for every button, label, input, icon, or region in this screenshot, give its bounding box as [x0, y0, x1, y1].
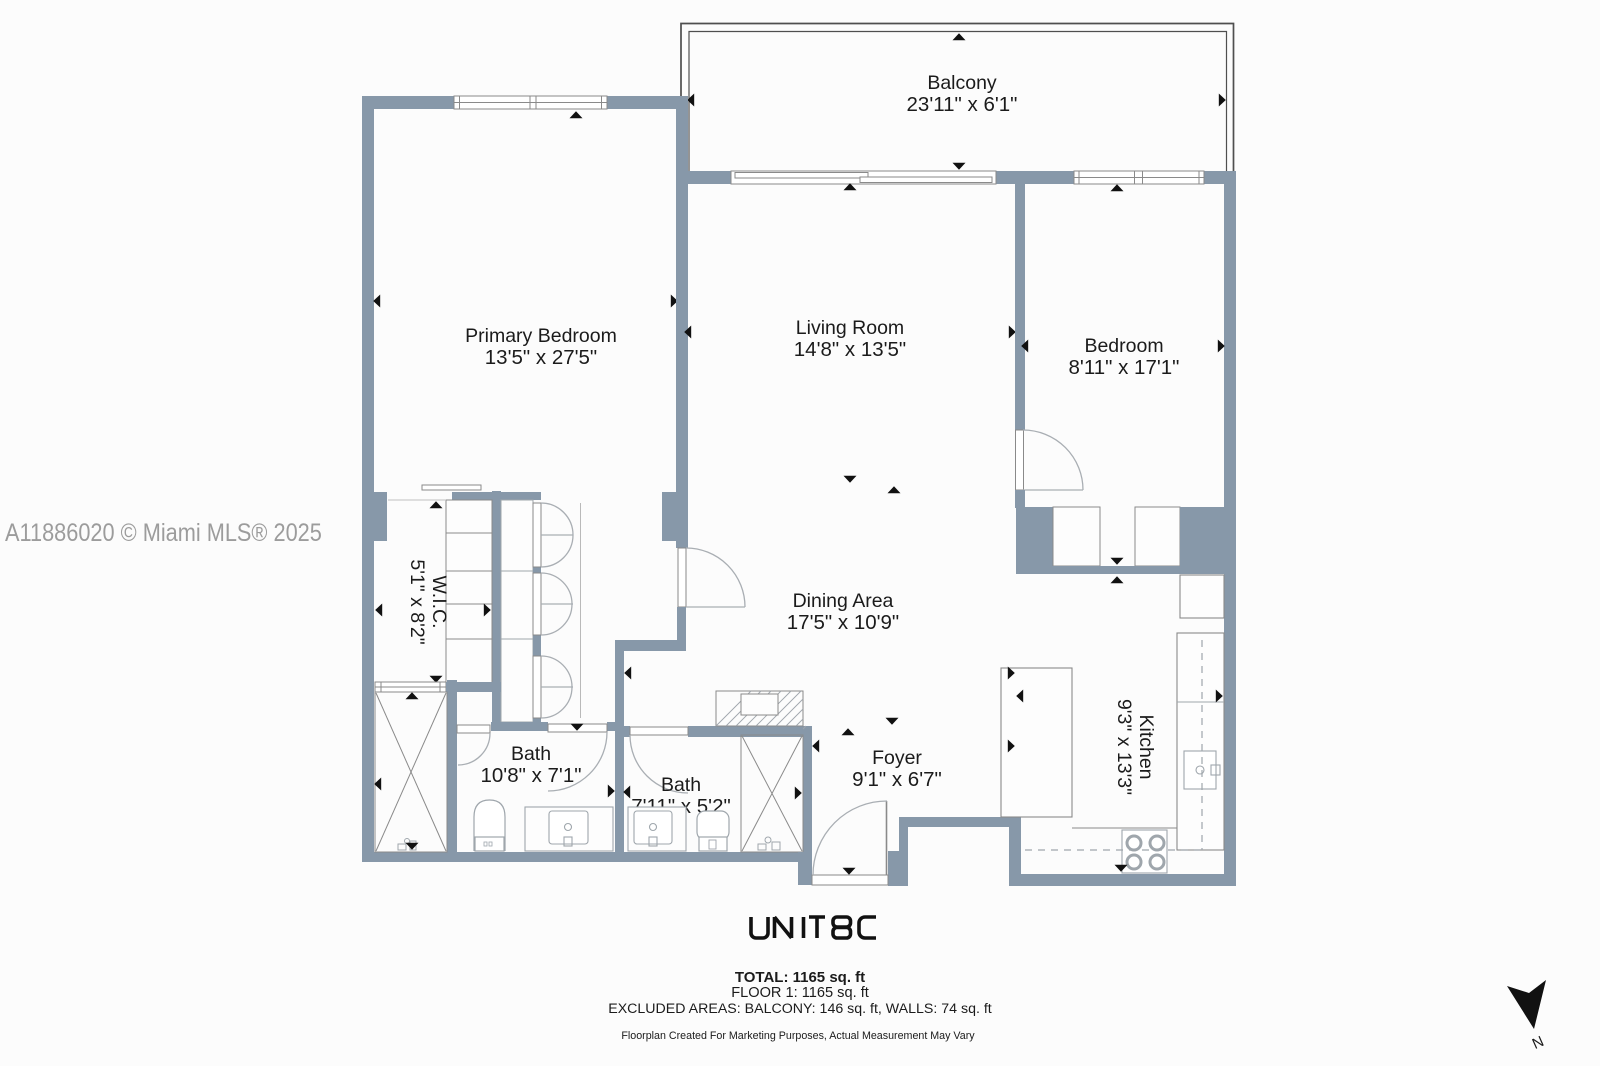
svg-text:9'3" x 13'3": 9'3" x 13'3"	[1113, 699, 1135, 795]
svg-text:W.I.C.: W.I.C.	[428, 575, 450, 628]
svg-text:8'11" x 17'1": 8'11" x 17'1"	[1069, 356, 1180, 379]
svg-text:9'1" x 6'7": 9'1" x 6'7"	[852, 768, 942, 791]
svg-text:Floorplan Created For Marketin: Floorplan Created For Marketing Purposes…	[621, 1030, 975, 1042]
svg-text:Primary Bedroom: Primary Bedroom	[465, 325, 617, 347]
svg-text:FLOOR 1: 1165 sq. ft: FLOOR 1: 1165 sq. ft	[731, 985, 869, 1001]
svg-text:14'8" x 13'5": 14'8" x 13'5"	[794, 338, 906, 361]
svg-text:10'8" x 7'1": 10'8" x 7'1"	[480, 764, 581, 787]
svg-text:Bath: Bath	[661, 774, 701, 796]
svg-text:Dining Area: Dining Area	[793, 590, 894, 612]
svg-text:23'11" x 6'1": 23'11" x 6'1"	[907, 93, 1018, 116]
svg-text:EXCLUDED AREAS: BALCONY: 146 s: EXCLUDED AREAS: BALCONY: 146 sq. ft, WAL…	[608, 1001, 992, 1017]
svg-text:Living Room: Living Room	[796, 317, 904, 339]
svg-text:Balcony: Balcony	[927, 72, 997, 94]
svg-text:Kitchen: Kitchen	[1135, 714, 1157, 779]
svg-text:N: N	[1530, 1033, 1547, 1053]
svg-text:Bath: Bath	[511, 743, 551, 765]
svg-text:Bedroom: Bedroom	[1084, 335, 1163, 357]
svg-text:17'5" x 10'9": 17'5" x 10'9"	[787, 611, 899, 634]
svg-text:Foyer: Foyer	[872, 747, 922, 769]
svg-text:TOTAL: 1165 sq. ft: TOTAL: 1165 sq. ft	[735, 969, 865, 986]
svg-text:13'5" x 27'5": 13'5" x 27'5"	[485, 346, 597, 369]
svg-text:A11886020 © Miami MLS® 2025: A11886020 © Miami MLS® 2025	[5, 519, 322, 547]
svg-text:5'1" x 8'2": 5'1" x 8'2"	[406, 559, 428, 644]
